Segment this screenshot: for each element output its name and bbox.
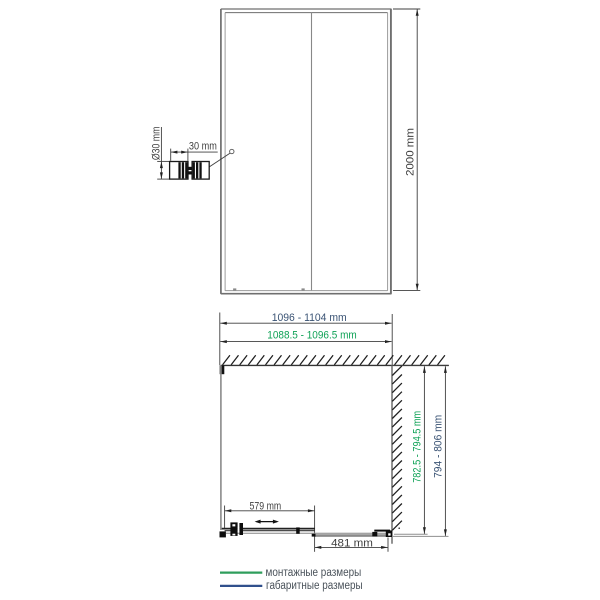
svg-text:Ø30 mm: Ø30 mm [151, 127, 163, 161]
svg-text:794 - 806 mm: 794 - 806 mm [433, 415, 445, 478]
svg-text:габаритные размеры: габаритные размеры [266, 580, 363, 592]
svg-text:30 mm: 30 mm [189, 140, 217, 152]
svg-text:1088.5 - 1096.5 mm: 1088.5 - 1096.5 mm [267, 329, 356, 341]
svg-text:1096 - 1104 mm: 1096 - 1104 mm [272, 312, 347, 324]
svg-text:481 mm: 481 mm [331, 538, 373, 550]
svg-text:2000 mm: 2000 mm [404, 128, 416, 176]
svg-text:монтажные размеры: монтажные размеры [266, 567, 362, 579]
svg-text:782.5 - 794.5 mm: 782.5 - 794.5 mm [411, 411, 423, 483]
svg-text:579 mm: 579 mm [250, 501, 282, 513]
